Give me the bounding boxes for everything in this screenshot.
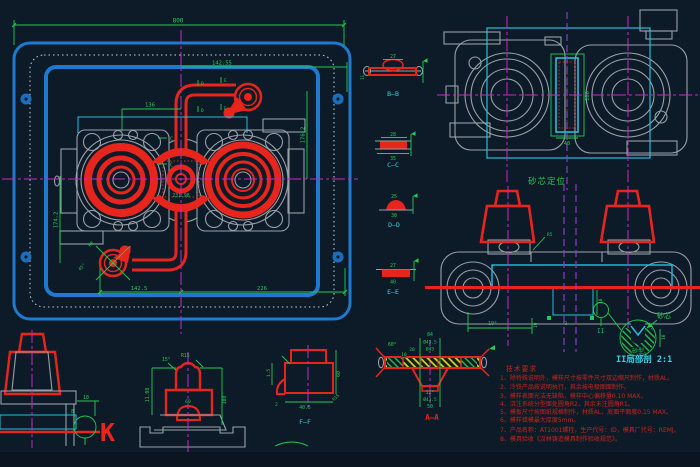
dim-aa-dia2: Ø43: [426, 346, 434, 353]
dim-dome-height: 11.08: [145, 388, 151, 403]
dim-dome-width: 60: [185, 399, 191, 405]
svg-text:D: D: [201, 81, 204, 87]
dim-sprue-center: 231.98: [172, 193, 189, 199]
dim-aa-angle1: 60°: [388, 342, 397, 348]
detail-ii-caption: II局部剖 2:1: [616, 354, 672, 365]
dim-elev-angle: 10°: [488, 321, 497, 327]
note-line-8: 8、模具验收《汉林铸造模具制作验收规范》。: [500, 435, 621, 443]
dim-bottom-right: 226: [257, 286, 267, 292]
dim-dd-top: 25: [391, 194, 397, 200]
dim-k-step: 8: [71, 409, 74, 415]
dim-dome-side: 100: [222, 396, 228, 405]
dim-aa-dia3: Ø43.5: [423, 396, 437, 403]
dim-aa-angle2: 12°: [426, 390, 435, 396]
dim-bb-width: 27: [390, 54, 396, 60]
section-aa-label: A—A: [425, 413, 439, 422]
dim-elev-radius: R5: [547, 232, 553, 238]
note-line-6: 6、模样错模最大厚度5mm。: [500, 416, 579, 424]
dim-aa-t2: 10: [401, 352, 407, 358]
dim-dome-radius: R15: [181, 353, 190, 359]
dim-aa-bottom: 50: [427, 404, 433, 410]
dim-elev-gap: 3: [565, 321, 568, 327]
dim-dd-bottom: 30: [391, 213, 397, 219]
dim-ff-width: 40.5: [299, 405, 311, 411]
note-line-3: 3、模样表面光洁无缺陷，模样中心偏移量0.10 MAX。: [500, 392, 646, 400]
dim-detail-depth: 10: [661, 334, 667, 340]
dim-aa-dia1: Ø43.5: [423, 339, 437, 346]
dim-bottom-left: 142.5: [131, 286, 148, 292]
dim-ff-wall: 1.5: [266, 369, 272, 377]
dim-dome-angle: 15°: [162, 357, 171, 363]
dim-core-height: 180: [585, 91, 591, 101]
dim-ee-top: 27: [390, 263, 396, 269]
dim-boss-span: 136: [145, 103, 155, 109]
section-ff-label: F—F: [299, 418, 311, 426]
dim-ff-height: 60: [336, 371, 342, 377]
dim-cc-top: 28: [390, 132, 396, 138]
note-line-5: 5、模板尺寸按图纸规格制作，材质AL，底面平面度0.15 MAX。: [500, 408, 672, 416]
svg-text:E: E: [224, 106, 227, 112]
detail-callout-label: II: [597, 328, 605, 335]
dim-aa-t1: 20: [409, 347, 415, 353]
section-ee-label: E—E: [387, 288, 399, 296]
dim-bb-side: 11: [360, 74, 365, 80]
cad-viewport: 800 142.55 136 174.2 176.2 142.5 226 231…: [0, 0, 700, 467]
note-line-4: 4、浇注系统分型面处圆角R2，其余未注圆角R1。: [500, 400, 634, 408]
section-bb-label: B—B: [387, 90, 399, 98]
section-dd-label: D—D: [388, 221, 400, 229]
sand-core-label: 砂芯: [657, 311, 671, 320]
dim-elev-depth2: 10: [533, 322, 539, 328]
dim-upper-width: 142.55: [212, 61, 232, 67]
svg-text:D: D: [201, 108, 204, 114]
svg-text:C: C: [170, 163, 173, 169]
core-positioning-label: 砂芯定位: [528, 176, 566, 187]
cad-drawing: 800 142.55 136 174.2 176.2 142.5 226 231…: [0, 0, 700, 467]
dim-k-offset: 10: [83, 395, 89, 401]
dim-aa-width: 84: [427, 332, 433, 338]
section-cc-label: C—C: [387, 161, 399, 169]
dim-ff-step: 2: [275, 402, 278, 408]
dim-height-right: 176.2: [301, 127, 307, 144]
note-line-7: 7、产品名称：AT1001螺栓，生产代号：ID，模具厂代号：REMJ。: [500, 426, 680, 434]
note-line-1: 1、除特殊说明外，模样尺寸按零件尺寸双边缩尺制作，材质AL。: [500, 374, 673, 382]
k-label: K: [100, 418, 115, 447]
dim-ee-bottom: 40: [390, 280, 396, 286]
bottom-margin-strip: [0, 452, 700, 467]
dim-plate-width: 800: [173, 18, 184, 25]
svg-text:E: E: [224, 78, 227, 84]
notes-title: 技术要求: [506, 364, 537, 373]
sand-mold-label: 砂型: [632, 347, 644, 355]
svg-text:C: C: [170, 137, 173, 143]
dim-height-left: 174.2: [54, 212, 60, 229]
note-line-2: 2、冷铁产品按说明执行，其余按电极图面制作。: [500, 383, 630, 391]
